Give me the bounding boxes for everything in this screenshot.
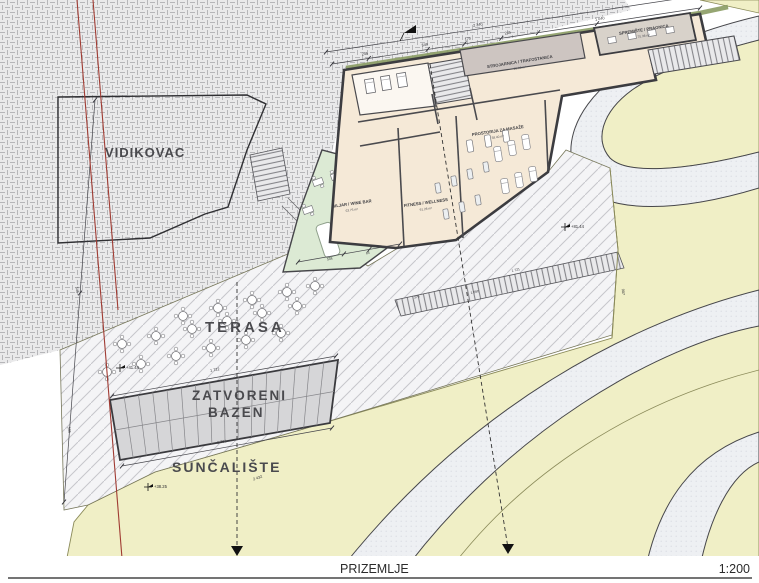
scale-value: 1:200 (719, 562, 750, 576)
label-terasa: TERASA (205, 319, 285, 336)
fitness-machine (435, 183, 442, 194)
floor-plan-sheet: +41.44 +38.25 +81.44 245 549 170 245 1 0… (0, 0, 759, 583)
fitness-machine (451, 176, 458, 187)
fitness-machine (467, 169, 474, 180)
floor-title: PRIZEMLJE (340, 562, 409, 576)
plan-canvas: +41.44 +38.25 +81.44 245 549 170 245 1 0… (0, 0, 759, 583)
label-suncaliste: SUNČALIŠTE (172, 458, 281, 475)
dim-label: 585 (67, 427, 72, 434)
label-zatvoreni: ZATVORENI (192, 388, 287, 403)
spot-elevation-value: +38.25 (154, 484, 168, 489)
dim-label: 907 (621, 289, 626, 296)
spot-elevation-value: +81.44 (571, 224, 585, 229)
fitness-machine (443, 209, 450, 220)
laundry-fixture (608, 36, 617, 43)
dim-label: 545 (75, 287, 80, 294)
spot-elevation-value: +41.44 (126, 365, 140, 370)
label-vidikovac: VIDIKOVAC (105, 145, 185, 160)
label-bazen: BAZEN (208, 405, 265, 420)
fitness-machine (459, 202, 466, 213)
fitness-machine (475, 195, 482, 206)
title-block: PRIZEMLJE 1:200 (0, 556, 759, 583)
bed-furniture (380, 75, 391, 90)
bed-furniture (364, 78, 375, 93)
fitness-machine (483, 162, 490, 173)
bed-furniture (396, 72, 407, 87)
